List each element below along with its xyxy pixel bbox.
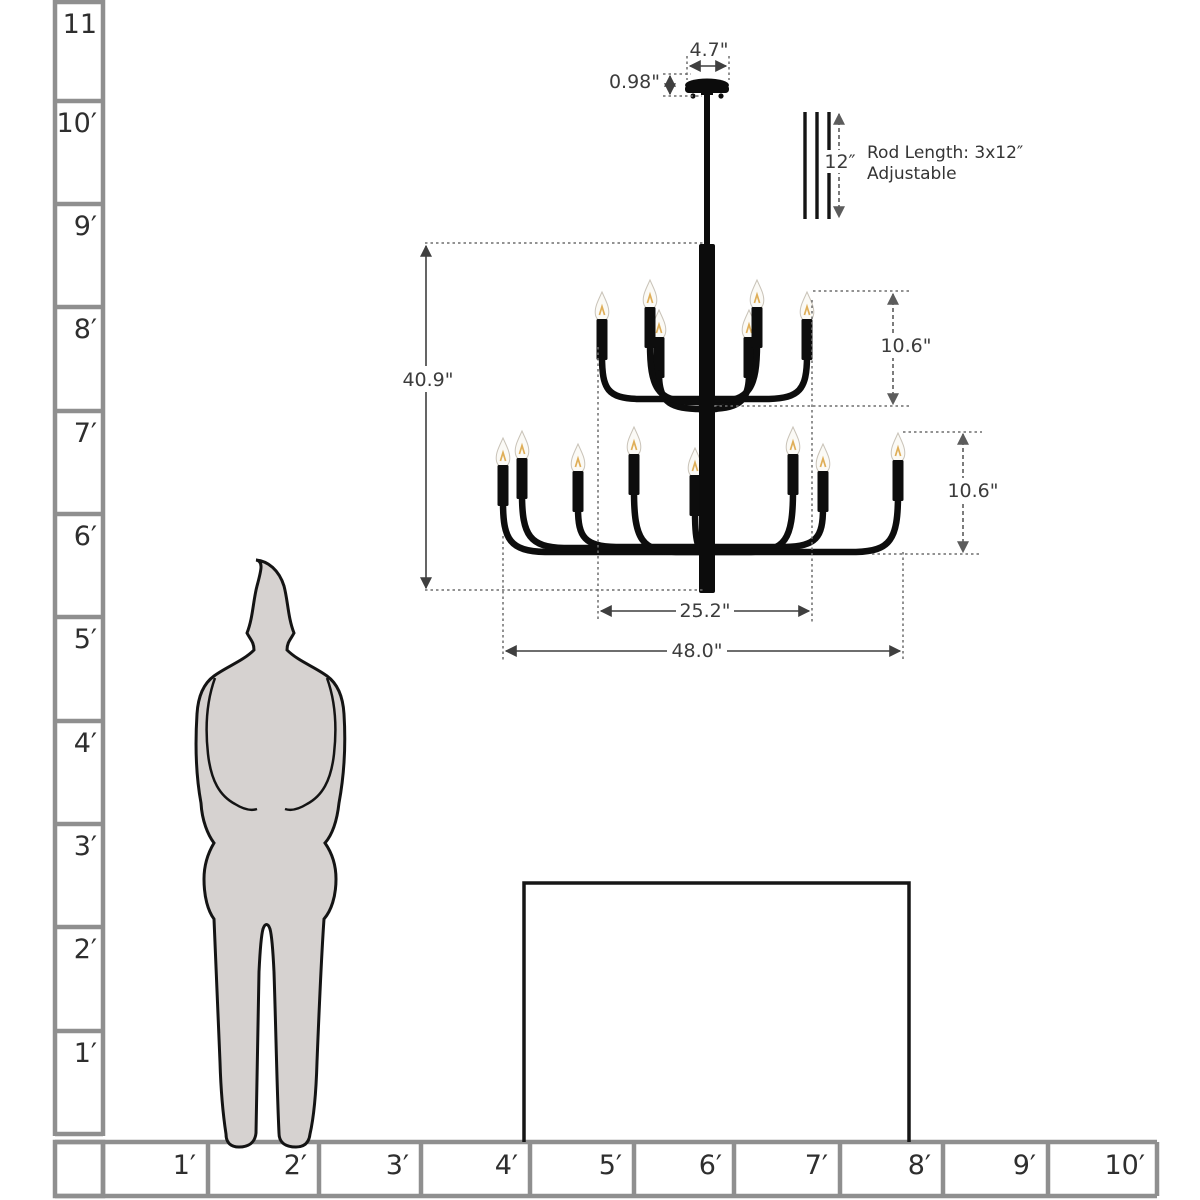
ruler-vertical: 11 10′ 9′ 8′ 7′ 6′ 5′ 4′ 3′ 2′ 1′	[55, 0, 103, 1196]
candle	[643, 280, 657, 348]
center-column	[699, 244, 715, 593]
floor-label-1ft: 1′	[173, 1150, 196, 1181]
ruler-label-4ft: 4′	[74, 728, 97, 759]
candle	[595, 292, 609, 360]
floor-label-2ft: 2′	[284, 1150, 307, 1181]
candle	[786, 427, 800, 495]
ruler-label-2ft: 2′	[74, 934, 97, 965]
candle	[496, 438, 510, 506]
ruler-label-5ft: 5′	[74, 624, 97, 655]
table-outline	[524, 883, 909, 1142]
person-body	[196, 560, 345, 1147]
dim-overall-height: 40.9"	[394, 243, 704, 590]
dim-top-tier-height-label: 10.6"	[880, 335, 931, 357]
ruler-label-6ft: 6′	[74, 521, 97, 552]
ruler-label-9ft: 9′	[74, 211, 97, 242]
scene: 11 10′ 9′ 8′ 7′ 6′ 5′ 4′ 3′ 2′ 1′ 1′ 2′ …	[0, 0, 1200, 1200]
candle	[816, 444, 830, 512]
ruler-label-1ft: 1′	[74, 1038, 97, 1069]
ruler-label-7ft: 7′	[74, 418, 97, 449]
candle	[750, 280, 764, 348]
ruler-label-8ft: 8′	[74, 314, 97, 345]
dim-overall-width-label: 48.0"	[671, 640, 722, 662]
floor-label-7ft: 7′	[805, 1150, 828, 1181]
dim-overall-height-label: 40.9"	[402, 369, 453, 391]
ruler-horizontal: 1′ 2′ 3′ 4′ 5′ 6′ 7′ 8′ 9′ 10′	[55, 1142, 1157, 1196]
candle	[891, 433, 905, 501]
ruler-corner-cell	[55, 1142, 103, 1196]
dim-bottom-tier-height-label: 10.6"	[947, 480, 998, 502]
dim-canopy-width-label: 4.7"	[690, 39, 729, 61]
floor-label-9ft: 9′	[1013, 1150, 1036, 1181]
rod-note-line2: Adjustable	[867, 164, 957, 184]
ruler-label-11ft: 11	[63, 9, 97, 40]
rod-note-line1: Rod Length: 3x12″	[867, 143, 1023, 163]
table-profile	[524, 883, 909, 1142]
floor-label-8ft: 8′	[908, 1150, 931, 1181]
ruler-label-3ft: 3′	[74, 831, 97, 862]
candle	[571, 444, 585, 512]
downrod	[704, 92, 710, 246]
person-silhouette	[196, 560, 345, 1147]
dim-top-tier-width-label: 25.2"	[679, 600, 730, 622]
floor-label-6ft: 6′	[699, 1150, 722, 1181]
floor-label-3ft: 3′	[386, 1150, 409, 1181]
floor-label-4ft: 4′	[495, 1150, 518, 1181]
candle	[515, 431, 529, 499]
dim-canopy-width: 4.7"	[687, 39, 729, 80]
dim-rod-length: 12″ Rod Length: 3x12″ Adjustable	[822, 114, 1023, 217]
ruler-label-10ft: 10′	[57, 108, 98, 139]
dim-canopy-height-label: 0.98"	[609, 71, 660, 93]
dim-rod-segment-label: 12″	[824, 151, 855, 173]
candle	[627, 427, 641, 495]
floor-label-5ft: 5′	[599, 1150, 622, 1181]
ruler-horizontal-rungs	[103, 1142, 1157, 1196]
floor-label-10ft: 10′	[1105, 1150, 1146, 1181]
dimension-diagram-page: 11 10′ 9′ 8′ 7′ 6′ 5′ 4′ 3′ 2′ 1′ 1′ 2′ …	[0, 0, 1200, 1200]
